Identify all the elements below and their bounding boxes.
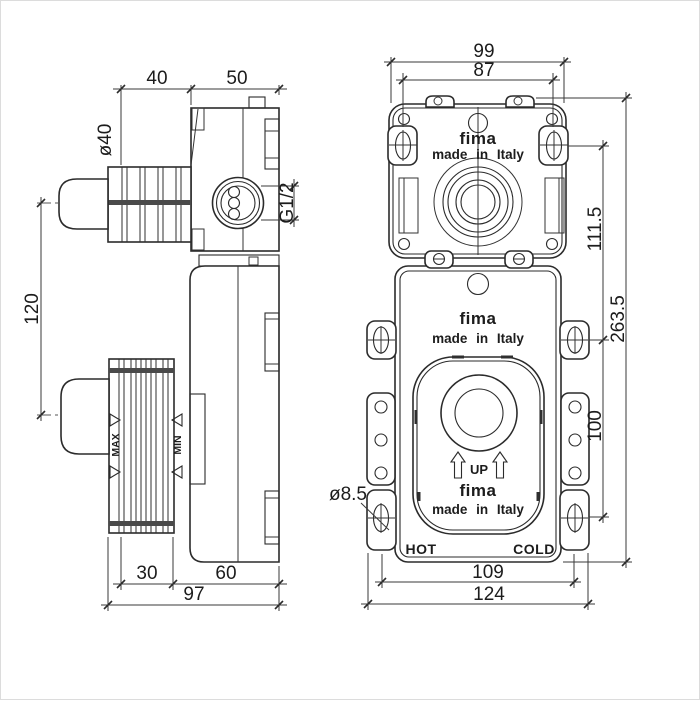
dim-87: 87 (473, 60, 494, 81)
dim-124: 124 (473, 584, 505, 605)
outlet-port (213, 178, 264, 229)
dim-40: 40 (146, 68, 167, 89)
side-flange (367, 393, 395, 485)
upper-knob (59, 179, 108, 229)
dim-30: 30 (136, 563, 157, 584)
dim-120: 120 (22, 293, 43, 325)
front-view: fima made in Italy (367, 96, 589, 562)
dim-50: 50 (226, 68, 247, 89)
valve-bore (441, 375, 517, 451)
lower-knob (61, 379, 109, 454)
dim-dia40: ø40 (95, 124, 116, 157)
dim-99: 99 (473, 41, 494, 62)
dim-111-5: 111.5 (585, 207, 606, 252)
valve-rough-in-drawing: MAX MIN (1, 1, 700, 701)
mounting-bar (199, 255, 279, 266)
up-label: UP (470, 462, 488, 477)
brand-text: fima (460, 481, 497, 500)
hot-label: HOT (405, 541, 436, 557)
dim-60: 60 (215, 563, 236, 584)
upper-body-lug (249, 97, 265, 108)
dim-dia8-5: ø8.5 (329, 484, 367, 505)
dim-109: 109 (472, 562, 504, 583)
cold-label: COLD (513, 541, 555, 557)
dim-263-5: 263.5 (608, 295, 629, 343)
technical-drawing-sheet: MAX MIN (0, 0, 700, 700)
origin-text: made in Italy (432, 331, 524, 346)
side-view: MAX MIN (37, 97, 279, 562)
dim-97: 97 (183, 584, 204, 605)
brand-text: fima (460, 309, 497, 328)
origin-text: made in Italy (432, 147, 524, 162)
seal-band (108, 200, 191, 205)
max-label: MAX (110, 433, 122, 456)
dim-100: 100 (585, 410, 606, 442)
lower-body (190, 266, 279, 562)
min-label: MIN (172, 435, 184, 454)
brand-text: fima (460, 129, 497, 148)
origin-text: made in Italy (432, 502, 524, 517)
dim-g12: G1/2 (277, 182, 298, 223)
